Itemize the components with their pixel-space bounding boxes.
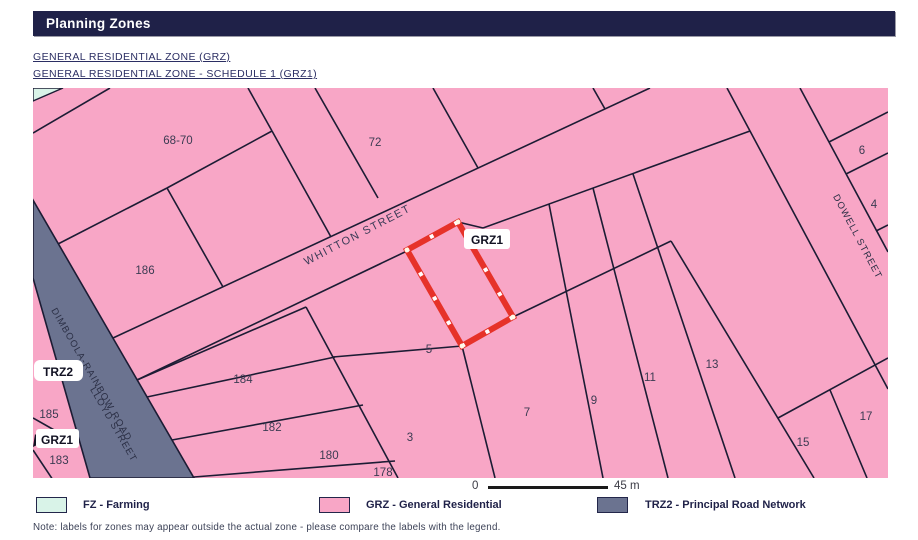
- zone-grz-fill: [33, 88, 888, 478]
- grz-swatch: [319, 497, 350, 513]
- lot-183: 183: [49, 455, 68, 467]
- fz-swatch: [36, 497, 67, 513]
- lot-68-70: 68-70: [163, 135, 192, 147]
- grz1-parcel-tag: GRZ1: [464, 229, 510, 249]
- lot-72: 72: [369, 137, 382, 149]
- link-grz[interactable]: GENERAL RESIDENTIAL ZONE (GRZ): [33, 51, 230, 63]
- grz1-parcel-tag-text: GRZ1: [471, 233, 503, 247]
- lot-9: 9: [591, 395, 597, 407]
- lot-17: 17: [860, 411, 873, 423]
- lot-4: 4: [871, 199, 878, 211]
- lot-5: 5: [426, 344, 432, 356]
- lot-185: 185: [39, 409, 58, 421]
- lot-13: 13: [706, 359, 719, 371]
- map-canvas: WHITTON STREET DOWELL STREET DIMBOOLA-RA…: [33, 88, 888, 478]
- trz2-swatch: [597, 497, 628, 513]
- trz2-label: TRZ2 - Principal Road Network: [645, 499, 806, 511]
- lot-186: 186: [135, 265, 154, 277]
- page-title: Planning Zones: [33, 11, 895, 36]
- legend-note: Note: labels for zones may appear outsid…: [33, 522, 501, 533]
- lot-182: 182: [262, 422, 281, 434]
- scale-bar-start: 0: [472, 480, 478, 492]
- trz2-road-tag: TRZ2: [34, 360, 83, 381]
- trz2-road-tag-text: TRZ2: [43, 365, 73, 379]
- grz-label: GRZ - General Residential: [366, 499, 502, 511]
- grz1-left-tag: GRZ1: [33, 429, 79, 448]
- scale-bar-end: 45 m: [614, 480, 640, 492]
- lot-184: 184: [233, 374, 253, 386]
- lot-178: 178: [373, 467, 392, 478]
- lot-6: 6: [859, 145, 865, 157]
- planning-zones-page: Planning Zones GENERAL RESIDENTIAL ZONE …: [0, 0, 918, 540]
- scale-bar-line: [488, 486, 608, 489]
- fz-label: FZ - Farming: [83, 499, 150, 511]
- lot-15: 15: [797, 437, 810, 449]
- link-grz1-schedule[interactable]: GENERAL RESIDENTIAL ZONE - SCHEDULE 1 (G…: [33, 68, 317, 80]
- lot-7: 7: [524, 407, 530, 419]
- planning-zone-map[interactable]: WHITTON STREET DOWELL STREET DIMBOOLA-RA…: [33, 88, 888, 478]
- grz1-left-tag-text: GRZ1: [41, 433, 73, 447]
- lot-11: 11: [644, 372, 656, 384]
- lot-180: 180: [319, 450, 338, 462]
- lot-3: 3: [407, 432, 413, 444]
